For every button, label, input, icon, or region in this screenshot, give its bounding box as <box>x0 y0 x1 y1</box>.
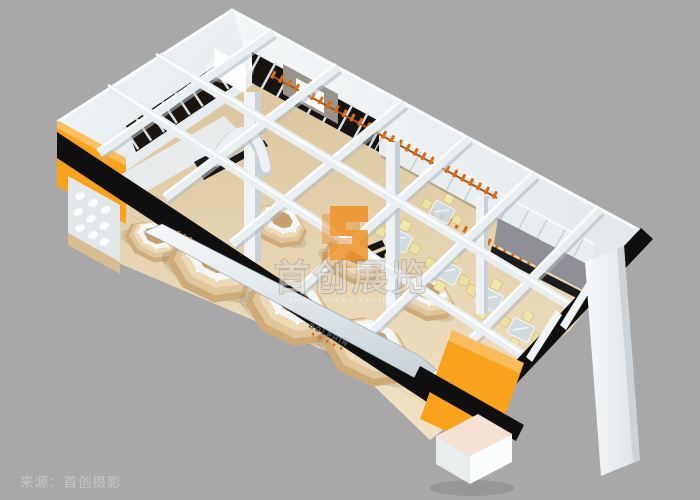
source-caption: 来源：首创摄影 <box>20 475 122 491</box>
watermark-logo <box>330 206 368 260</box>
showroom-render: DOLPHIN 首创展览 <box>0 0 700 500</box>
watermark-title: 首创展览 <box>274 258 430 299</box>
watermark-subtitle: SHOUCHUANG EXHIBITION <box>288 297 415 305</box>
screenshot-root: DOLPHIN 首创展览 <box>0 0 700 500</box>
